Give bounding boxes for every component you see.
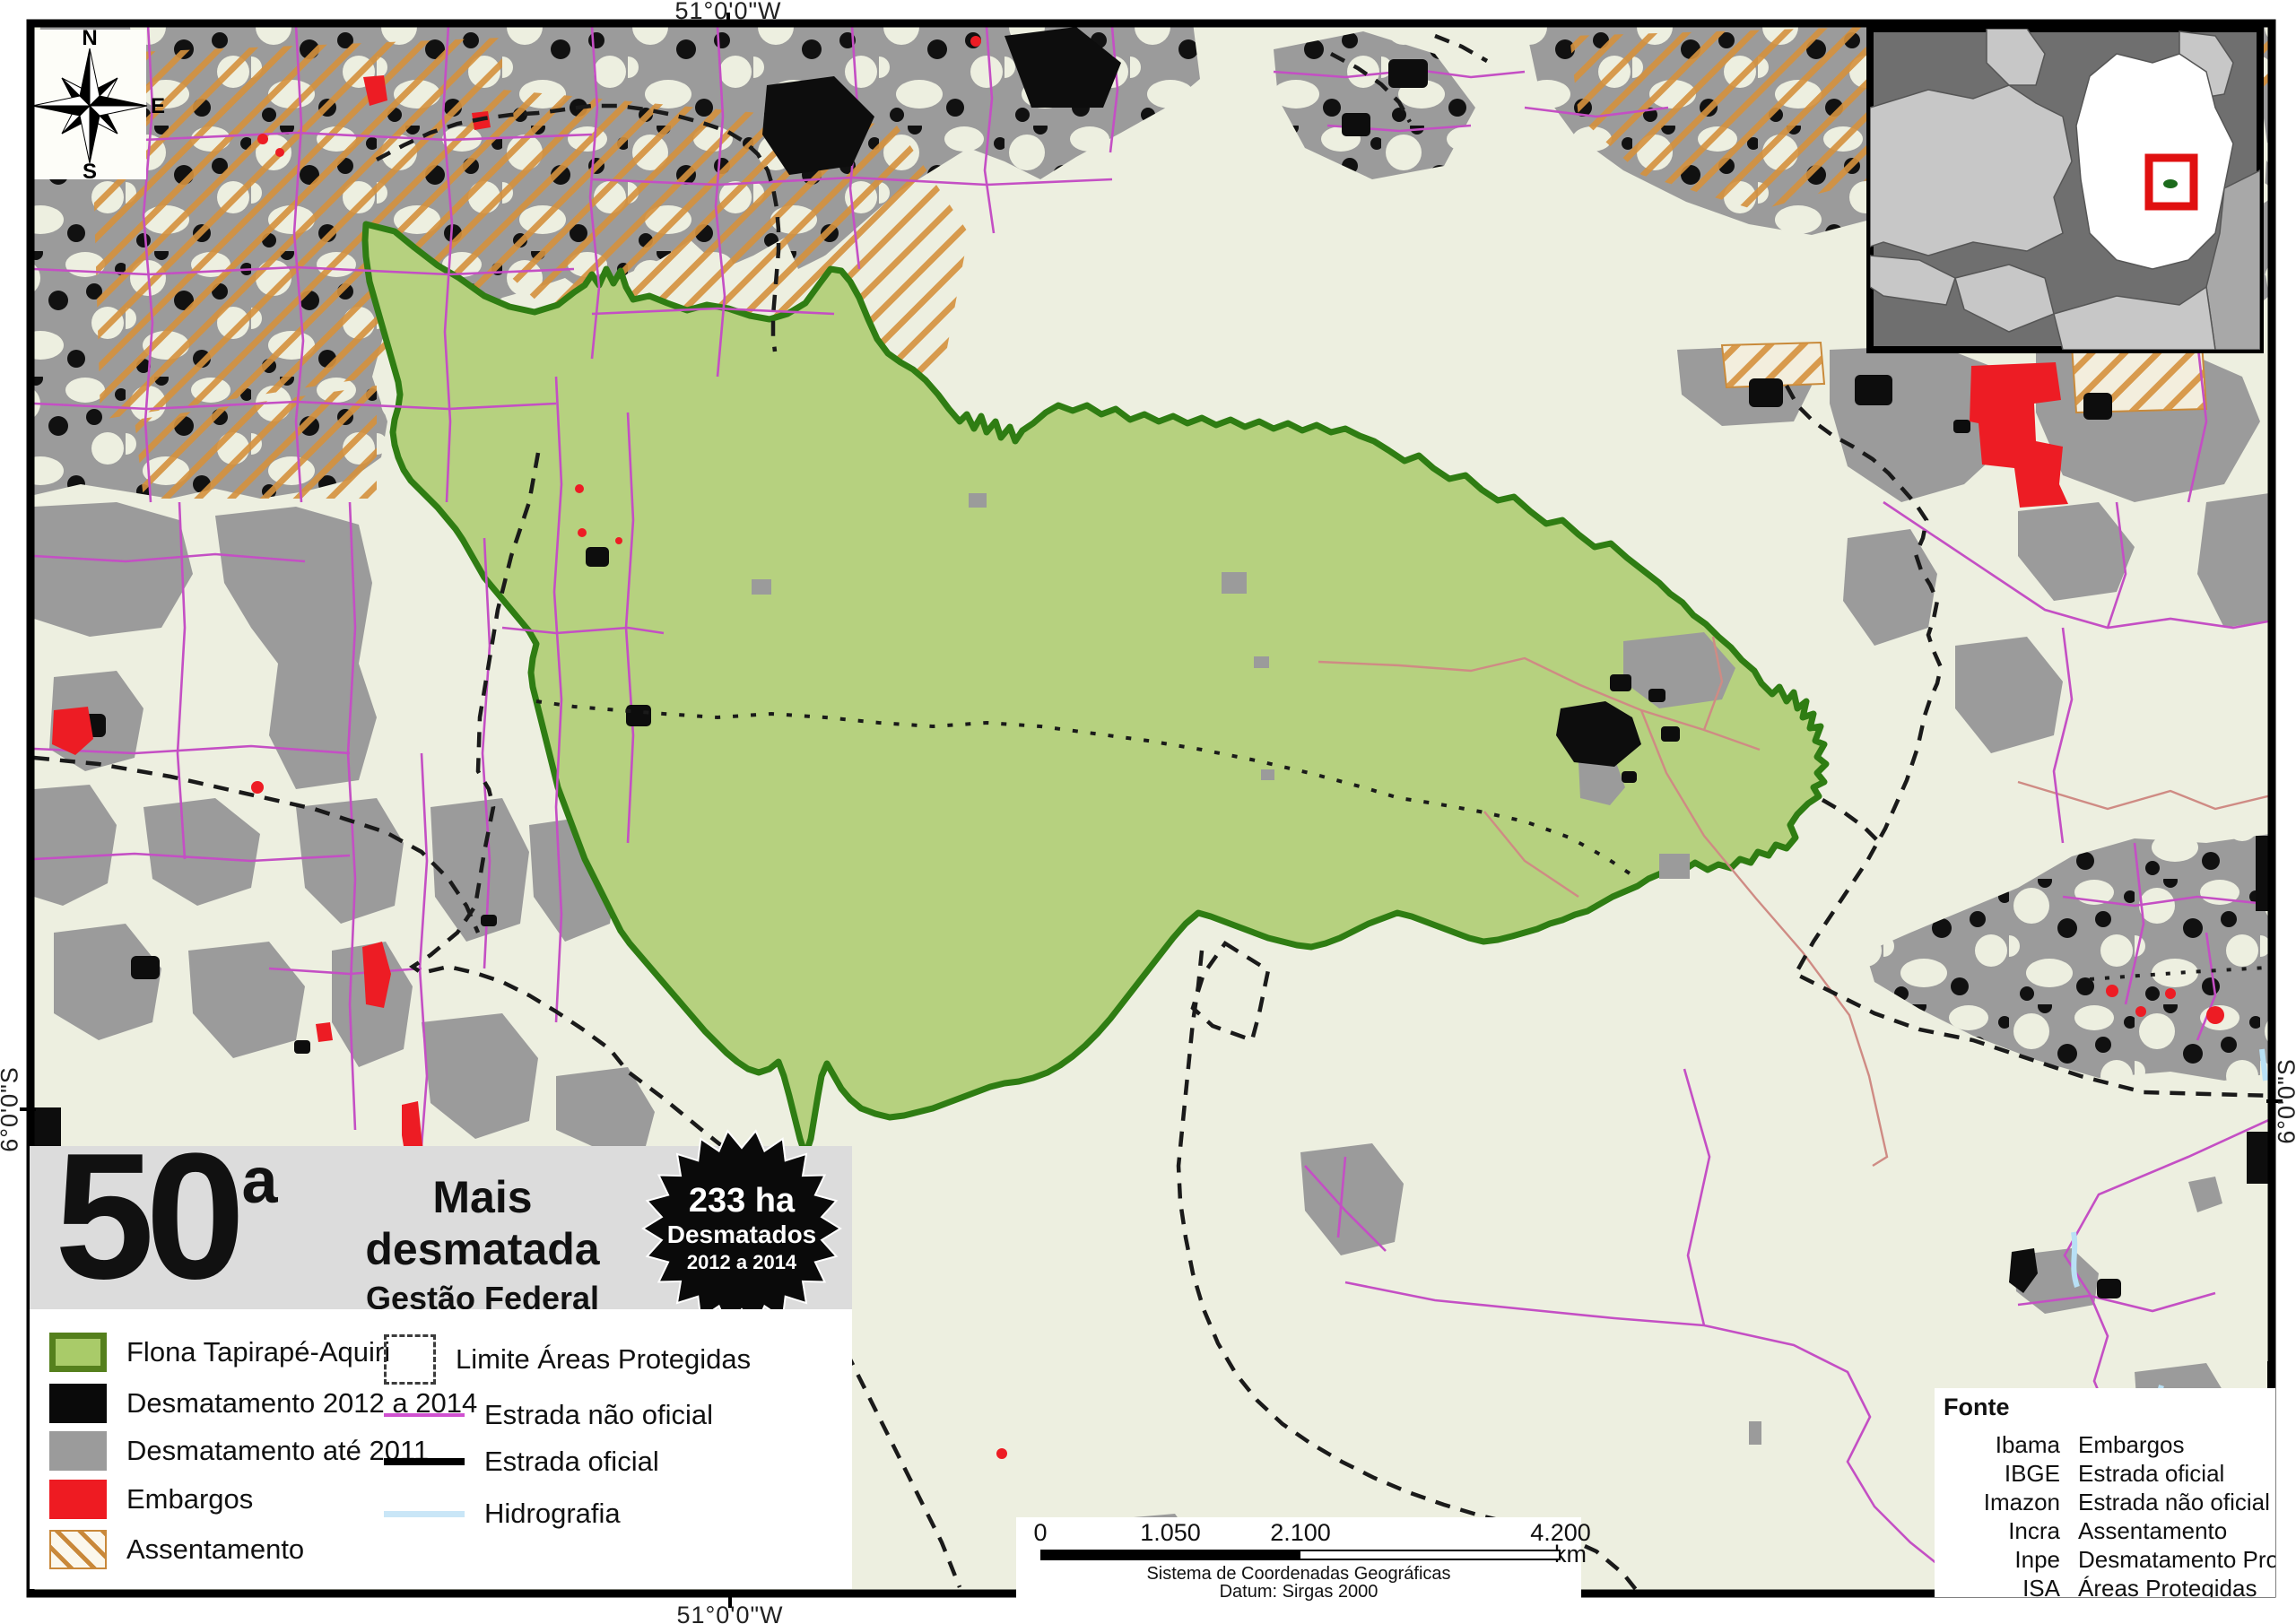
fonte-row: Incra Assentamento	[1944, 1516, 2275, 1545]
legend-item-embargos: Embargos	[49, 1480, 253, 1519]
fonte-layer: Áreas Protegidas	[2078, 1574, 2257, 1597]
legend-item-flona: Flona Tapirapé-Aquiri	[49, 1333, 390, 1372]
coordinate-label-right: 6°0'0"S	[2274, 1058, 2296, 1144]
flona-swatch	[49, 1333, 107, 1372]
scale-tick-1: 1.050	[1140, 1519, 1201, 1547]
embargos-swatch	[49, 1480, 107, 1519]
compass-north-label: N	[82, 26, 97, 50]
badge-area-label: Desmatados	[667, 1220, 817, 1250]
fonte-row: IBGE Estrada oficial	[1944, 1459, 2275, 1488]
badge-period: 2012 a 2014	[687, 1250, 796, 1275]
datum-label: Datum: Sirgas 2000	[1016, 1582, 1581, 1602]
fonte-layer: Estrada oficial	[2078, 1459, 2224, 1488]
scale-bar: 0 1.050 2.100 4.200 km Sistema de Coorde…	[1016, 1517, 1581, 1601]
legend-item-estrada-oficial: Estrada oficial	[384, 1446, 659, 1478]
desmatamento-2012-2014-swatch	[49, 1384, 107, 1423]
fonte-layer: Assentamento	[2078, 1516, 2227, 1545]
scale-tick-0: 0	[1033, 1519, 1047, 1547]
limite-swatch	[384, 1334, 436, 1385]
fonte-header: Fonte	[1944, 1394, 2275, 1421]
rank-ordinal: a	[241, 1145, 277, 1217]
map-sheet: N S W E 51°0'	[0, 0, 2296, 1624]
fonte-layer: Embargos	[2078, 1430, 2185, 1459]
rank-text: 50a	[55, 1135, 273, 1298]
fonte-layer: Estrada não oficial	[2078, 1488, 2270, 1516]
inset-flona-dot	[2163, 179, 2178, 188]
estrada-oficial-swatch	[384, 1458, 465, 1465]
deforestation-badge: 233 ha Desmatados 2012 a 2014	[641, 1128, 842, 1329]
title-box: 50a Mais desmatada Gestão Federal 233 ha…	[30, 1146, 852, 1309]
legend-label: Estrada não oficial	[484, 1399, 713, 1431]
legend-item-desmatamento-ate-2011: Desmatamento até 2011	[49, 1431, 429, 1471]
compass-east-label: E	[151, 94, 165, 118]
legend-item-limite: Limite Áreas Protegidas	[384, 1334, 751, 1385]
title-main: Mais desmatada	[335, 1171, 631, 1275]
compass-south-label: S	[83, 160, 97, 184]
badge-area-value: 233 ha	[689, 1182, 795, 1220]
legend-item-estrada-nao-oficial: Estrada não oficial	[384, 1399, 713, 1431]
fonte-row: Inpe Desmatamento Prodes	[1944, 1545, 2275, 1574]
fonte-source: IBGE	[1944, 1459, 2060, 1488]
fonte-row: ISA Áreas Protegidas	[1944, 1574, 2275, 1597]
legend-label: Limite Áreas Protegidas	[456, 1343, 751, 1376]
inset-map	[1870, 29, 2260, 350]
fonte-row: Imazon Estrada não oficial	[1944, 1488, 2275, 1516]
crs-label: Sistema de Coordenadas Geográficas	[1016, 1564, 1581, 1584]
compass-west-label: W	[8, 94, 29, 118]
scale-tick-2: 2.100	[1270, 1519, 1331, 1547]
fonte-layer: Desmatamento Prodes	[2078, 1545, 2275, 1574]
hidrografia-swatch	[384, 1511, 465, 1517]
legend: Flona Tapirapé-Aquiri Desmatamento 2012 …	[30, 1309, 852, 1589]
fonte-box: Fonte Ibama Embargos IBGE Estrada oficia…	[1935, 1388, 2275, 1597]
assentamento-swatch	[49, 1530, 107, 1569]
legend-label: Assentamento	[126, 1533, 304, 1566]
legend-label: Estrada oficial	[484, 1446, 659, 1478]
rank-number: 50	[55, 1116, 236, 1316]
desmatamento-ate-2011-swatch	[49, 1431, 107, 1471]
legend-label: Embargos	[126, 1483, 253, 1515]
fonte-source: Incra	[1944, 1516, 2060, 1545]
fonte-row: Ibama Embargos	[1944, 1430, 2275, 1459]
coordinate-label-bottom: 51°0'0"W	[676, 1602, 783, 1624]
legend-label: Flona Tapirapé-Aquiri	[126, 1336, 390, 1368]
fonte-source: Ibama	[1944, 1430, 2060, 1459]
coordinate-label-top: 51°0'0"W	[674, 0, 781, 25]
fonte-source: Imazon	[1944, 1488, 2060, 1516]
legend-item-assentamento: Assentamento	[49, 1530, 304, 1569]
fonte-source: Inpe	[1944, 1545, 2060, 1574]
legend-item-hidrografia: Hidrografia	[384, 1498, 621, 1530]
fonte-source: ISA	[1944, 1574, 2060, 1597]
coordinate-label-left: 6°0'0"S	[0, 1066, 24, 1152]
estrada-nao-oficial-swatch	[384, 1413, 465, 1417]
scale-bar-graphic	[1040, 1550, 1561, 1560]
legend-label: Hidrografia	[484, 1498, 621, 1530]
